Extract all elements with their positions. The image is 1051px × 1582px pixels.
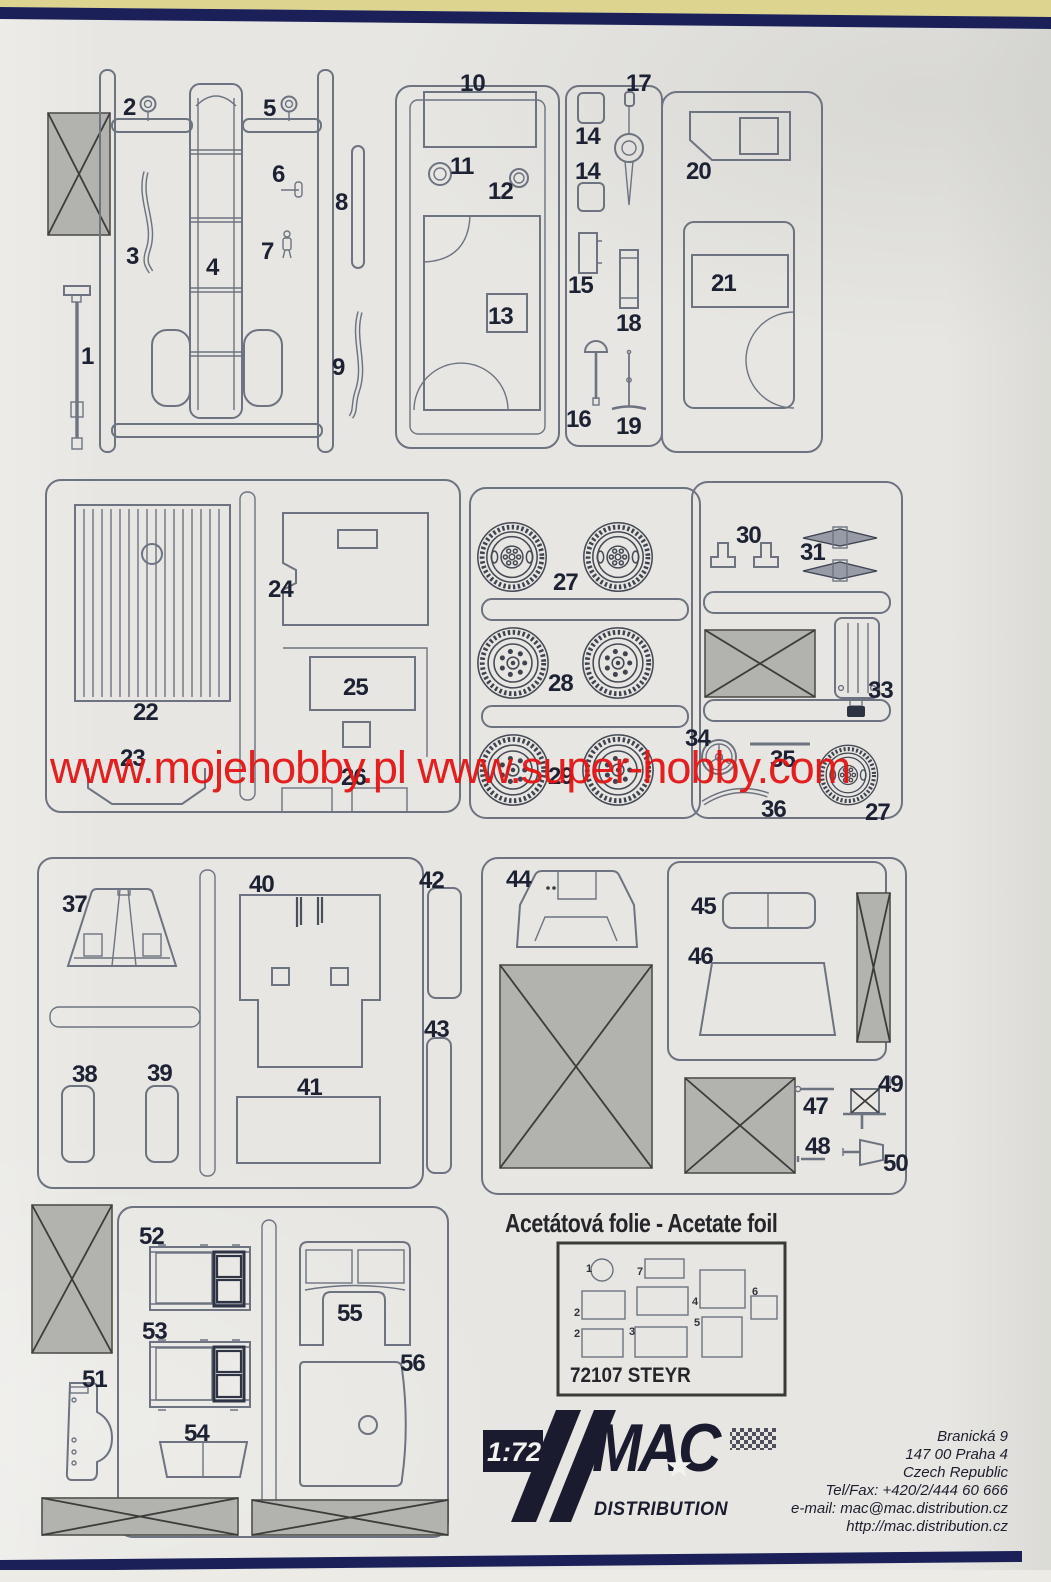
part-label-31: 31 <box>800 541 825 565</box>
foil-label-2a: 2 <box>574 1308 580 1319</box>
part-label-33: 33 <box>868 679 893 703</box>
brand-logo-text: MAC <box>592 1414 718 1482</box>
part-label-50: 50 <box>883 1152 908 1176</box>
part-label-54: 54 <box>184 1422 209 1446</box>
part-label-6: 6 <box>272 163 284 187</box>
bottom-edge-rule <box>0 1551 1022 1571</box>
address-line-6: http://mac.distribution.cz <box>700 1518 1008 1536</box>
part-label-3: 3 <box>126 245 138 269</box>
address-line-2: 147 00 Praha 4 <box>700 1446 1008 1464</box>
part-label-52: 52 <box>139 1225 164 1249</box>
part-label-46: 46 <box>688 945 713 969</box>
part-label-15: 15 <box>568 274 593 298</box>
part-label-45: 45 <box>691 895 716 919</box>
part-label-28: 28 <box>548 672 573 696</box>
part-label-13: 13 <box>488 305 513 329</box>
part-label-36: 36 <box>761 798 786 822</box>
part-label-39: 39 <box>147 1062 172 1086</box>
foil-label-3: 3 <box>629 1327 635 1338</box>
sprue-b-drawing <box>396 86 559 448</box>
part-label-40: 40 <box>249 873 274 897</box>
part-label-22: 22 <box>133 701 158 725</box>
part-label-37: 37 <box>62 893 87 917</box>
address-line-3: Czech Republic <box>700 1464 1008 1482</box>
part-label-18: 18 <box>616 312 641 336</box>
address-line-4: Tel/Fax: +420/2/444 60 666 <box>700 1482 1008 1500</box>
foil-label-5: 5 <box>694 1318 700 1329</box>
part-label-12: 12 <box>488 180 513 204</box>
top-edge-rules <box>0 0 1051 29</box>
part-label-48: 48 <box>805 1135 830 1159</box>
part-label-19: 19 <box>616 415 641 439</box>
address-line-1: Branická 9 <box>700 1428 1008 1446</box>
part-label-8: 8 <box>335 191 347 215</box>
part-label-11: 11 <box>450 155 473 179</box>
part-label-7: 7 <box>261 240 273 264</box>
address-block: Branická 9 147 00 Praha 4 Czech Republic… <box>700 1428 1008 1536</box>
part-label-47: 47 <box>803 1095 828 1119</box>
foil-label-6: 6 <box>752 1287 758 1298</box>
part-label-16: 16 <box>566 408 591 432</box>
part-label-55: 55 <box>337 1302 362 1326</box>
page-bottom-edge <box>0 1570 1051 1582</box>
watermark-text: www.mojehobby.pl www.super-hobby.com <box>50 742 1050 794</box>
part-label-24: 24 <box>268 578 293 602</box>
foil-label-7: 7 <box>637 1267 643 1278</box>
part-label-14b: 14 <box>575 160 600 184</box>
sprue-d-drawing <box>662 92 822 452</box>
part-label-1: 1 <box>81 345 93 369</box>
part-label-17: 17 <box>626 72 651 96</box>
part-label-38: 38 <box>72 1063 97 1087</box>
part-label-4: 4 <box>206 256 218 280</box>
part-label-49: 49 <box>878 1073 903 1097</box>
part-label-14a: 14 <box>575 125 600 149</box>
scale-badge: 1:72 <box>487 1437 541 1468</box>
part-label-27: 27 <box>553 571 578 595</box>
star-icon: ★ <box>664 1446 694 1485</box>
part-label-21: 21 <box>711 272 736 296</box>
part-label-44: 44 <box>506 868 531 892</box>
part-label-5: 5 <box>263 97 275 121</box>
part-label-10: 10 <box>460 72 485 96</box>
foil-label-2b: 2 <box>574 1329 580 1340</box>
part-label-43: 43 <box>424 1018 449 1042</box>
sprue-h-drawing <box>38 858 461 1188</box>
kit-number-label: 72107 STEYR <box>570 1364 691 1388</box>
scanned-instruction-sheet: 2 5 6 8 3 4 7 1 9 10 11 12 13 14 14 15 1… <box>0 0 1051 1582</box>
foil-label-1: 1 <box>586 1264 592 1275</box>
part-label-51: 51 <box>82 1368 107 1392</box>
part-label-56: 56 <box>400 1352 425 1376</box>
part-label-53: 53 <box>142 1320 167 1344</box>
part-label-30: 30 <box>736 524 761 548</box>
part-label-25: 25 <box>343 676 368 700</box>
part-label-27b: 27 <box>865 801 890 825</box>
part-label-2: 2 <box>123 96 135 120</box>
part-label-41: 41 <box>297 1076 322 1100</box>
address-line-5: e-mail: mac@mac.distribution.cz <box>700 1500 1008 1518</box>
acetate-foil-heading: Acetátová folie - Acetate foil <box>505 1208 777 1239</box>
part-label-9: 9 <box>332 356 344 380</box>
part-label-20: 20 <box>686 160 711 184</box>
foil-label-4: 4 <box>692 1297 698 1308</box>
part-label-42: 42 <box>419 869 444 893</box>
